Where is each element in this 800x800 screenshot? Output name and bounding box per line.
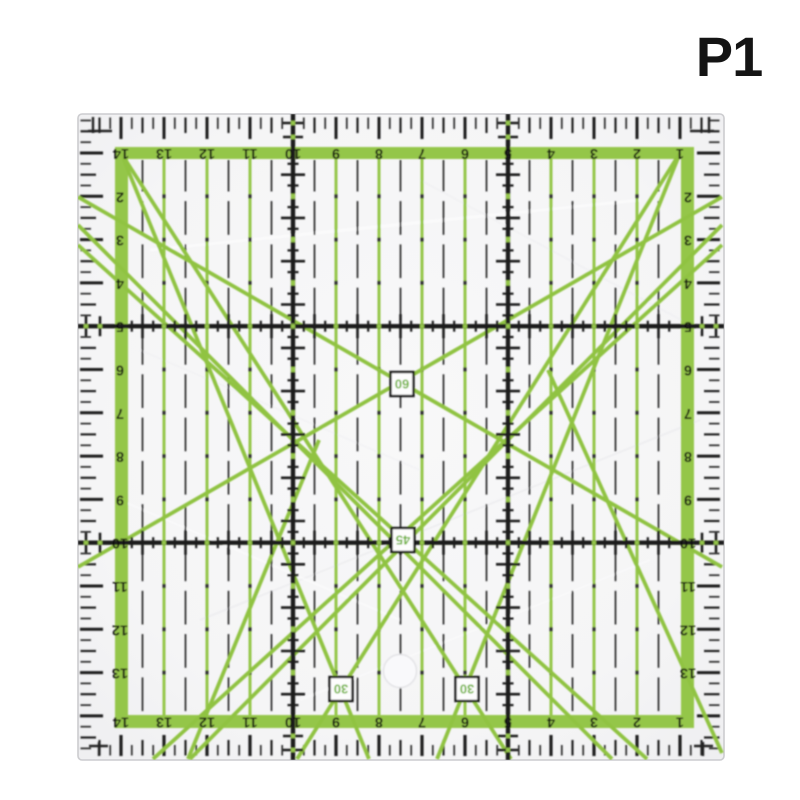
- svg-text:12: 12: [199, 145, 215, 161]
- svg-text:9: 9: [684, 491, 692, 507]
- svg-text:8: 8: [684, 448, 692, 464]
- svg-text:14: 14: [113, 714, 129, 730]
- svg-text:5: 5: [116, 318, 124, 334]
- svg-text:11: 11: [242, 145, 257, 161]
- svg-text:7: 7: [418, 714, 426, 730]
- svg-text:6: 6: [116, 362, 124, 378]
- svg-text:11: 11: [112, 578, 127, 594]
- svg-text:3: 3: [116, 232, 124, 248]
- svg-text:1: 1: [676, 145, 684, 161]
- svg-text:12: 12: [680, 621, 696, 637]
- svg-text:6: 6: [461, 145, 469, 161]
- svg-text:2: 2: [116, 188, 124, 204]
- svg-text:8: 8: [375, 145, 383, 161]
- svg-text:12: 12: [199, 714, 215, 730]
- svg-text:13: 13: [680, 665, 696, 681]
- svg-text:10: 10: [285, 145, 301, 161]
- svg-text:4: 4: [547, 145, 555, 161]
- svg-text:13: 13: [112, 665, 128, 681]
- svg-text:3: 3: [684, 232, 692, 248]
- svg-text:6: 6: [684, 362, 692, 378]
- svg-text:5: 5: [684, 318, 692, 334]
- svg-text:2: 2: [633, 145, 641, 161]
- svg-text:7: 7: [684, 405, 692, 421]
- svg-text:3: 3: [590, 145, 598, 161]
- svg-text:9: 9: [332, 145, 340, 161]
- svg-text:9: 9: [332, 714, 340, 730]
- svg-text:13: 13: [156, 714, 172, 730]
- svg-text:6: 6: [461, 714, 469, 730]
- svg-text:45: 45: [396, 533, 410, 548]
- svg-text:3: 3: [590, 714, 598, 730]
- svg-text:13: 13: [156, 145, 172, 161]
- svg-text:11: 11: [680, 578, 695, 594]
- svg-text:10: 10: [680, 535, 696, 551]
- svg-text:2: 2: [633, 714, 641, 730]
- svg-text:4: 4: [547, 714, 555, 730]
- svg-text:30: 30: [334, 682, 348, 697]
- svg-text:2: 2: [684, 188, 692, 204]
- svg-text:1: 1: [676, 714, 684, 730]
- svg-text:11: 11: [242, 714, 257, 730]
- svg-text:P1: P1: [696, 25, 763, 88]
- svg-text:4: 4: [684, 275, 692, 291]
- svg-text:12: 12: [112, 621, 128, 637]
- svg-text:14: 14: [113, 145, 129, 161]
- svg-text:5: 5: [504, 714, 512, 730]
- svg-text:7: 7: [116, 405, 124, 421]
- svg-text:10: 10: [285, 714, 301, 730]
- svg-text:9: 9: [116, 491, 124, 507]
- svg-text:8: 8: [116, 448, 124, 464]
- svg-text:30: 30: [460, 682, 474, 697]
- svg-text:4: 4: [116, 275, 124, 291]
- svg-text:8: 8: [375, 714, 383, 730]
- svg-text:60: 60: [395, 377, 409, 392]
- svg-text:7: 7: [418, 145, 426, 161]
- svg-text:5: 5: [504, 145, 512, 161]
- svg-text:10: 10: [112, 535, 128, 551]
